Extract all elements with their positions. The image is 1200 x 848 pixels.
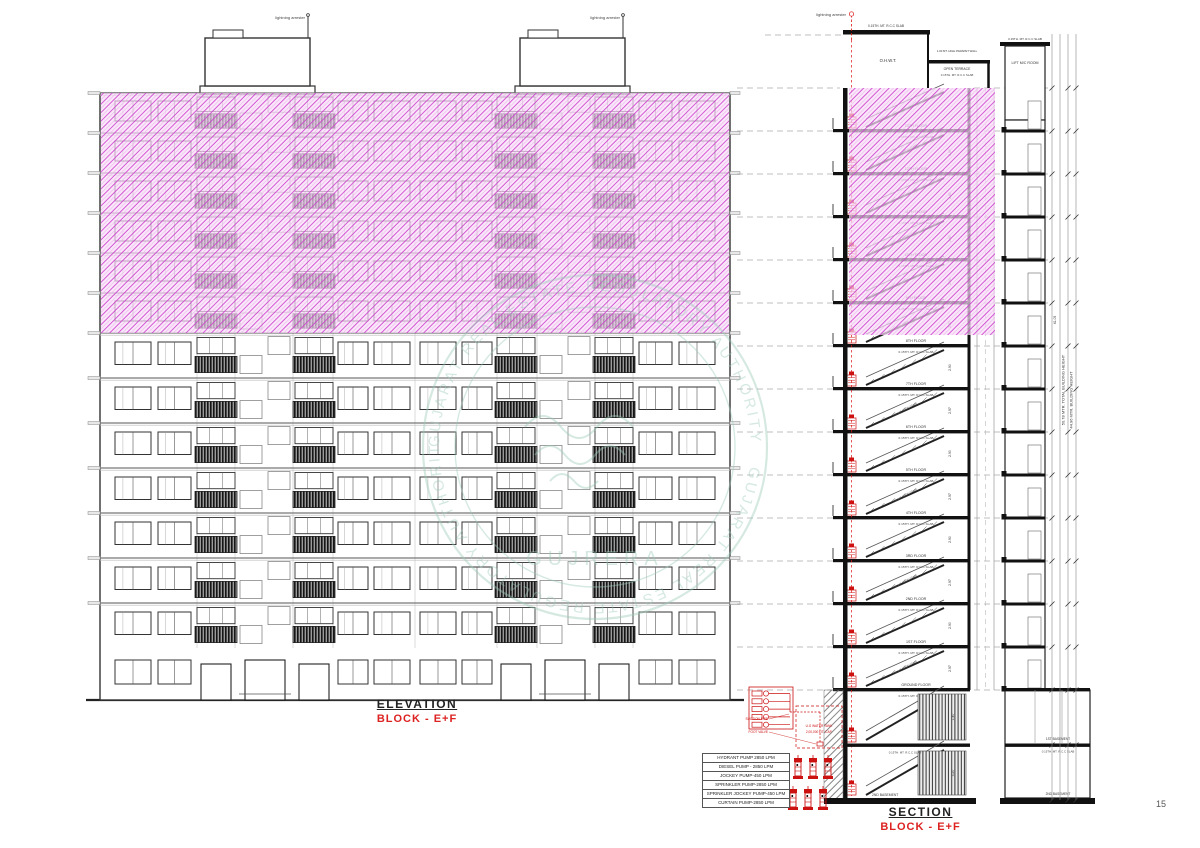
stair-panel — [240, 536, 262, 554]
balcony-railing — [593, 356, 635, 372]
slab-label: 0.15TH. MT. R.C.C SLAB — [899, 651, 934, 655]
floor-label: 7TH FLOOR — [906, 382, 927, 386]
balcony-railing — [293, 626, 335, 642]
room-door — [1028, 359, 1041, 387]
lightning-arrester-label: lightning arrester — [816, 12, 846, 17]
slab-label: 0.15TH. MT. R.C.C SLAB — [889, 751, 922, 755]
balcony-railing — [293, 581, 335, 597]
entrance-door — [501, 664, 531, 700]
balcony-railing — [293, 401, 335, 417]
height-dim: 41.05 — [1053, 316, 1057, 325]
slab-label: 0.15TH. MT. R.C.C SLAB — [868, 24, 904, 28]
basement-label: 2ND BASEMENT — [1046, 792, 1071, 796]
beam-block — [1002, 557, 1007, 563]
foot-valve-icon — [817, 742, 823, 746]
slab-stub — [88, 212, 100, 215]
slab-stub — [88, 292, 100, 295]
room-door — [1028, 316, 1041, 344]
floor-dim: 2.90 — [948, 622, 952, 629]
section-title: SECTION — [843, 805, 998, 819]
balcony-window — [197, 473, 235, 489]
elevation-title-block: ELEVATION BLOCK - E+F — [337, 697, 497, 725]
beam-block — [1002, 514, 1007, 520]
earth-hatch — [824, 690, 843, 800]
stair-tower — [205, 38, 310, 86]
stair-panel — [240, 491, 262, 509]
pump-base — [823, 776, 833, 779]
section-drawing: 1.50 MT. WIDE STAIR1.50 MT. WIDE STAIR1.… — [737, 12, 1095, 804]
slab-stub — [730, 332, 740, 335]
pump-table-cell: SPRINKLER JOCKEY PUMP-450 LPM — [703, 790, 790, 799]
drawing-sheet: lightning arresterlightning arrester 1.5… — [0, 0, 1200, 848]
balcony-railing — [195, 581, 237, 597]
balcony-railing — [495, 401, 537, 417]
balcony-window — [295, 473, 333, 489]
beam-block — [1002, 600, 1007, 606]
stair-panel — [268, 472, 290, 490]
floor-dim: 2.90 — [948, 536, 952, 543]
balcony-railing — [495, 491, 537, 507]
pump-table-row: SPRINKLER JOCKEY PUMP-450 LPM — [703, 790, 790, 799]
lightning-tip-icon — [622, 14, 625, 17]
room-door — [1028, 445, 1041, 473]
drawing-canvas: lightning arresterlightning arrester 1.5… — [0, 0, 1200, 848]
stair-panel — [240, 446, 262, 464]
pump-table-row: DIESEL PUMP - 2850 LPM — [703, 763, 790, 772]
balcony-window — [497, 338, 535, 354]
tank-slab — [843, 30, 930, 35]
lightning-tip-icon — [849, 12, 853, 16]
slab-stub — [88, 467, 100, 470]
pump-icon — [824, 758, 832, 762]
pump-table-cell: HYDRANT PUMP 2850 LPM — [703, 754, 790, 763]
basement-label: 1ST BASEMENT — [1046, 737, 1070, 741]
room-slab — [1005, 173, 1045, 176]
pump-icon — [794, 758, 802, 762]
balcony-window — [497, 518, 535, 534]
stair-panel — [240, 356, 262, 374]
balcony-railing — [495, 356, 537, 372]
stair-panel — [268, 517, 290, 535]
floor-label: 3RD FLOOR — [906, 554, 927, 558]
balcony-window — [197, 338, 235, 354]
slab-stub — [730, 252, 740, 255]
slab-stub — [88, 172, 100, 175]
stair-panel — [540, 626, 562, 644]
beam-block — [1002, 170, 1007, 176]
floor-label: 1ST FLOOR — [906, 640, 926, 644]
balcony-railing — [495, 446, 537, 462]
lift-room-label: LIFT M/C ROOM — [1011, 61, 1038, 65]
pink-hatch-zone — [849, 88, 995, 335]
slab-stub — [730, 132, 740, 135]
raft-slab — [1000, 798, 1095, 804]
pump-table-cell: CURTAIN PUMP-2850 LPM — [703, 799, 790, 808]
room-door — [1028, 101, 1041, 129]
balcony-window — [295, 383, 333, 399]
watermark-center-text: GUJRERA — [526, 548, 664, 570]
room-slab — [1005, 560, 1045, 563]
balcony-window — [595, 473, 633, 489]
room-door — [1028, 187, 1041, 215]
pump-table-body: HYDRANT PUMP 2850 LPMDIESEL PUMP - 2850 … — [703, 754, 790, 808]
stair-panel — [568, 337, 590, 355]
stair-panel — [540, 491, 562, 509]
slab-label: 0.15TH. MT. R.C.C SLAB — [899, 565, 934, 569]
pump-casing — [763, 699, 768, 704]
entrance-door — [299, 664, 329, 700]
stair-panel — [268, 382, 290, 400]
total-height-dim: 50.78 MTR. TOTAL BUILDING HEIGHT — [1061, 354, 1066, 425]
stair-panel — [568, 472, 590, 490]
lightning-tip-icon — [307, 14, 310, 17]
balcony-window — [197, 563, 235, 579]
balcony-window — [595, 428, 633, 444]
room-slab — [1005, 388, 1045, 391]
balcony-window — [197, 518, 235, 534]
stair-panel — [268, 427, 290, 445]
page-number: 15 — [1156, 799, 1166, 809]
floor-dim: 2.90 — [948, 364, 952, 371]
pump-detail — [797, 764, 799, 766]
slab-stub — [730, 92, 740, 95]
slab-label: 0.15TH. MT. R.C.C SLAB — [899, 436, 934, 440]
pump-capacity-table: HYDRANT PUMP 2850 LPMDIESEL PUMP - 2850 … — [702, 753, 790, 808]
beam-block — [1002, 428, 1007, 434]
pump-table-row: HYDRANT PUMP 2850 LPM — [703, 754, 790, 763]
balcony-railing — [195, 356, 237, 372]
balcony-window — [497, 608, 535, 624]
stair-panel — [240, 626, 262, 644]
room-slab — [1005, 302, 1045, 305]
slab-stub — [88, 92, 100, 95]
basement-wall — [918, 694, 966, 740]
basement-wall — [918, 751, 966, 795]
balcony-railing — [293, 356, 335, 372]
balcony-railing — [293, 491, 335, 507]
basement-dim: 1.40 — [951, 714, 955, 721]
floor-dim: 2.97 — [948, 665, 952, 672]
stair-panel — [540, 356, 562, 374]
pump-motor — [752, 707, 762, 712]
balcony-window — [595, 338, 633, 354]
room-slab — [1005, 259, 1045, 262]
room-slab — [1005, 517, 1045, 520]
floor-label: 4TH FLOOR — [906, 511, 927, 515]
basement-dim: 3.20 — [951, 770, 955, 777]
terrace-slab — [928, 60, 990, 64]
slab-stub — [88, 252, 100, 255]
pump-motor — [752, 699, 762, 704]
pump-icon — [819, 789, 827, 793]
slab-stub — [88, 332, 100, 335]
terrace-label: OPEN TERRACE — [944, 67, 971, 71]
beam-block — [1002, 643, 1007, 649]
balcony-window — [197, 383, 235, 399]
floor-dim: 2.97 — [948, 579, 952, 586]
pump-icon — [789, 789, 797, 793]
label-leader — [769, 714, 789, 719]
room-door — [1028, 273, 1041, 301]
pump-icon — [804, 789, 812, 793]
floor-dim: 2.97 — [948, 407, 952, 414]
balcony-window — [595, 518, 633, 534]
slab-stub — [88, 557, 100, 560]
slab-stub — [88, 377, 100, 380]
room-door — [1028, 144, 1041, 172]
slab-label: 0.15TH. MT. R.C.C SLAB — [899, 522, 934, 526]
slab-stub — [730, 557, 740, 560]
slab-label: 0.15TH. MT. R.C.C SLAB — [899, 608, 934, 612]
balcony-window — [197, 428, 235, 444]
slab-label: 0.15TH. MT. R.C.C SLAB — [1042, 750, 1075, 754]
floor-slab — [845, 516, 970, 519]
basement-label: 2ND BASEMENT — [872, 793, 898, 797]
pump-table-row: SPRINKLER PUMP-2850 LPM — [703, 781, 790, 790]
floor-slab — [845, 602, 970, 605]
beam-block — [1002, 342, 1007, 348]
floor-label: GROUND FLOOR — [901, 683, 931, 687]
balcony-railing — [195, 536, 237, 552]
room-slab — [1005, 431, 1045, 434]
stair-panel — [568, 517, 590, 535]
floor-slab — [845, 473, 970, 476]
basement-slab — [843, 744, 970, 747]
room-slab — [1005, 130, 1045, 133]
balcony-railing — [495, 626, 537, 642]
slab-stub — [730, 292, 740, 295]
room-slab — [1005, 646, 1045, 649]
balcony-railing — [593, 626, 635, 642]
balcony-window — [295, 338, 333, 354]
slab-stub — [88, 602, 100, 605]
balcony-window — [497, 473, 535, 489]
balcony-railing — [293, 536, 335, 552]
floor-label: 5TH FLOOR — [906, 468, 927, 472]
pump-base — [808, 776, 818, 779]
beam-block — [1002, 471, 1007, 477]
balcony-railing — [195, 446, 237, 462]
elevation-subtitle: BLOCK - E+F — [337, 713, 497, 725]
floor-dim: 2.90 — [948, 450, 952, 457]
pump-motor — [752, 722, 762, 727]
slab-stub — [88, 422, 100, 425]
room-door — [1028, 402, 1041, 430]
suction-pipe-label: SUCTION PIPE — [746, 717, 769, 721]
balcony-railing — [293, 446, 335, 462]
slab-label: 0.15TH. MT. R.C.C SLAB — [941, 73, 974, 77]
beam-block — [1002, 299, 1007, 305]
elevation-title: ELEVATION — [337, 697, 497, 711]
pump-casing — [763, 691, 768, 696]
stair-panel — [268, 337, 290, 355]
stair-panel — [568, 382, 590, 400]
entrance-door — [201, 664, 231, 700]
stair-panel — [240, 401, 262, 419]
room-door — [1028, 660, 1041, 688]
room-door — [1028, 617, 1041, 645]
floor-slab — [845, 645, 970, 648]
stair-panel — [268, 562, 290, 580]
pump-table-cell: DIESEL PUMP - 2850 LPM — [703, 763, 790, 772]
beam-block — [1002, 256, 1007, 262]
balcony-window — [295, 518, 333, 534]
floor-label: 8TH FLOOR — [906, 339, 927, 343]
floor-slab — [845, 688, 970, 691]
stair-panel — [240, 581, 262, 599]
balcony-window — [595, 383, 633, 399]
ohwt-label: O.H.W.T. — [880, 58, 897, 63]
lightning-arrester-label: lightning arrester — [590, 15, 620, 20]
slab-label: 0.15TH. MT. R.C.C SLAB — [1008, 37, 1042, 41]
slab-stub — [88, 512, 100, 515]
pump-base — [803, 807, 813, 810]
raft-slab — [824, 798, 976, 804]
tower-cap — [213, 30, 243, 38]
entrance-door — [599, 664, 629, 700]
beam-block — [1002, 385, 1007, 391]
floor-slab — [845, 559, 970, 562]
balcony-window — [295, 608, 333, 624]
slab-stub — [88, 132, 100, 135]
room-door — [1028, 574, 1041, 602]
tank-label: U.G WATER TANK — [806, 724, 834, 728]
section-title-block: SECTION BLOCK - E+F — [843, 805, 998, 833]
balcony-railing — [593, 446, 635, 462]
pump-detail — [792, 795, 794, 797]
room-slab — [1005, 603, 1045, 606]
lightning-arrester-label: lightning arrester — [275, 15, 305, 20]
pump-casing — [763, 722, 768, 727]
balcony-railing — [593, 581, 635, 597]
left-wall — [843, 88, 848, 800]
room-door — [1028, 488, 1041, 516]
balcony-window — [197, 608, 235, 624]
balcony-window — [295, 428, 333, 444]
balcony-railing — [593, 491, 635, 507]
pump-table-cell: JOCKEY PUMP-450 LPM — [703, 772, 790, 781]
room-slab — [1005, 474, 1045, 477]
slab-stub — [730, 467, 740, 470]
foot-valve-label: FOOT VALVE — [749, 730, 768, 734]
parapet-label: 1.00 MT. HIGH PARAPET WALL — [937, 49, 978, 53]
floor-label: 6TH FLOOR — [906, 425, 927, 429]
pump-detail — [807, 795, 809, 797]
slab-stub — [730, 212, 740, 215]
floor-dim: 2.97 — [948, 493, 952, 500]
balcony-railing — [195, 626, 237, 642]
floor-slab — [845, 344, 970, 347]
tower-cap — [528, 30, 558, 38]
slab-stub — [730, 422, 740, 425]
beam-block — [1002, 213, 1007, 219]
pump-detail — [827, 764, 829, 766]
pump-table-row: CURTAIN PUMP-2850 LPM — [703, 799, 790, 808]
pump-casing — [763, 707, 768, 712]
floor-slab — [845, 430, 970, 433]
pump-table-cell: SPRINKLER PUMP-2850 LPM — [703, 781, 790, 790]
balcony-window — [497, 428, 535, 444]
stair-tower — [520, 38, 625, 86]
pump-base — [818, 807, 828, 810]
slab-label: 0.15TH. MT. R.C.C SLAB — [899, 479, 934, 483]
slab-label: 0.15TH. MT. R.C.C SLAB — [899, 393, 934, 397]
balcony-window — [497, 383, 535, 399]
pump-motor — [752, 691, 762, 696]
room-slab — [1005, 345, 1045, 348]
stair-panel — [268, 607, 290, 625]
balcony-railing — [195, 491, 237, 507]
room-door — [1028, 230, 1041, 258]
balcony-window — [295, 563, 333, 579]
tank-capacity-label: 2,00,000 LIT. CAP. — [806, 730, 832, 734]
beam-block — [1002, 127, 1007, 133]
pump-detail — [822, 795, 824, 797]
floor-slab — [845, 387, 970, 390]
floor-label: 2ND FLOOR — [906, 597, 927, 601]
room-slab — [1005, 216, 1045, 219]
pump-detail — [812, 764, 814, 766]
section-subtitle: BLOCK - E+F — [843, 821, 998, 833]
pump-icon — [809, 758, 817, 762]
building-height-dim: 44.96 MTR. BUILDING HEIGHT — [1069, 371, 1074, 429]
pump-table-row: JOCKEY PUMP-450 LPM — [703, 772, 790, 781]
slab-label: 0.15TH. MT. R.C.C SLAB — [899, 350, 934, 354]
pump-base — [793, 776, 803, 779]
room-door — [1028, 531, 1041, 559]
balcony-railing — [195, 401, 237, 417]
